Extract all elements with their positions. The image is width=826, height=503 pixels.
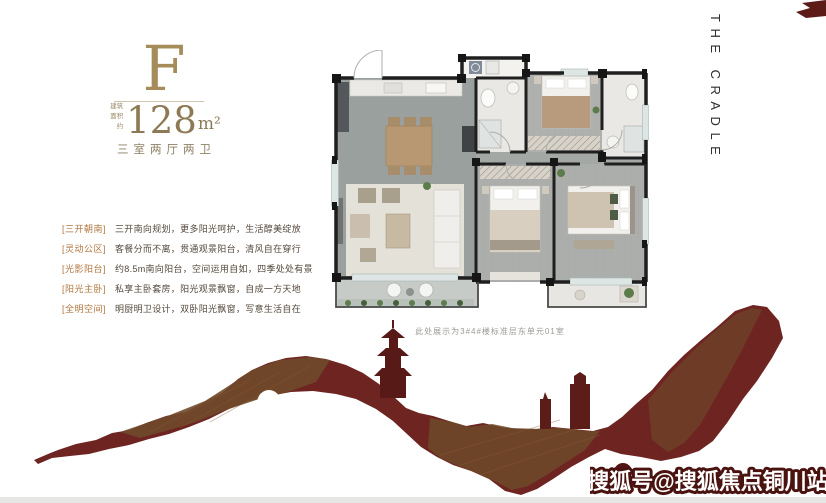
plant [624,288,634,298]
toilet [626,84,638,100]
coffee-table [386,214,410,248]
tower-silhouettes [540,372,590,429]
blanket [542,96,590,128]
feature-desc: 三开南向规划，更多阳光呵护，生活醇美绽放 [115,219,312,239]
sofa [434,190,460,268]
corner-art [794,0,826,20]
entry-door [354,50,382,78]
feature-tag: [阳光主卧] [62,279,108,299]
feature-tag: [灵动公区] [62,239,108,259]
area-value: 128 [126,106,197,136]
area-prefix: 建筑 面积约 [107,102,123,131]
watermark: 搜狐号@搜狐焦点铜川站 [590,458,826,502]
area-prefix-line2: 面积约 [107,112,123,132]
poster: F 建筑 面积约 128 m² 三室两厅两卫 [三开朝南] 三开南向规划，更多阳… [0,0,826,503]
pouf [360,248,376,262]
unit-layout: 三室两厅两卫 [40,141,288,157]
feature-desc: 约8.5m南向阳台，空间运用自如，四季处处有景 [115,259,313,279]
feature-row: [阳光主卧] 私享主卧套房，阳光观景飘窗，自成一方天地 [62,279,312,299]
side-table [406,288,414,296]
cooktop [384,83,402,93]
washer [469,61,482,74]
stool [575,290,585,300]
bench [574,240,614,249]
wall-brown-left [120,357,330,438]
blanket [568,192,614,228]
washbasin [507,82,519,94]
bay-window-seat [490,272,540,280]
armchair [350,214,370,238]
headboard [630,186,635,234]
feature-tag: [光影阳台] [62,259,108,279]
feature-row: [光影阳台] 约8.5m南向阳台，空间运用自如，四季处处有景 [62,259,312,279]
chair [387,283,401,297]
area-row: 建筑 面积约 128 m² [40,102,288,136]
unit-type-letter: F [40,38,288,100]
fridge [462,126,475,152]
brand-vertical-text: THE CRADLE [708,14,723,224]
area-prefix-line1: 建筑 [107,102,123,112]
dining-area [386,117,432,175]
bridge-arch [257,390,281,416]
sink [426,83,446,93]
toilet [481,89,495,107]
feature-row: [灵动公区] 客餐分而不离，贯通观景阳台，清风自在穿行 [62,239,312,259]
feature-row: [三开朝南] 三开南向规划，更多阳光呵护，生活醇美绽放 [62,219,312,239]
watermark-text: 搜狐号@搜狐焦点铜川站 [590,469,826,494]
plant [557,169,565,177]
feature-tag: [三开朝南] [62,219,108,239]
living-room [337,182,464,276]
plant [593,107,600,114]
chair [419,283,433,297]
feature-desc: 私享主卧套房，阳光观景飘窗，自成一方天地 [115,279,312,299]
plant [423,182,431,190]
floor-plan [330,50,650,312]
dryer [486,61,499,74]
area-unit: m² [198,112,221,136]
shower [624,126,644,152]
tall-cabinet [337,82,349,132]
feature-desc: 客餐分而不离，贯通观景阳台，清风自在穿行 [115,239,312,259]
dining-table [386,126,432,166]
